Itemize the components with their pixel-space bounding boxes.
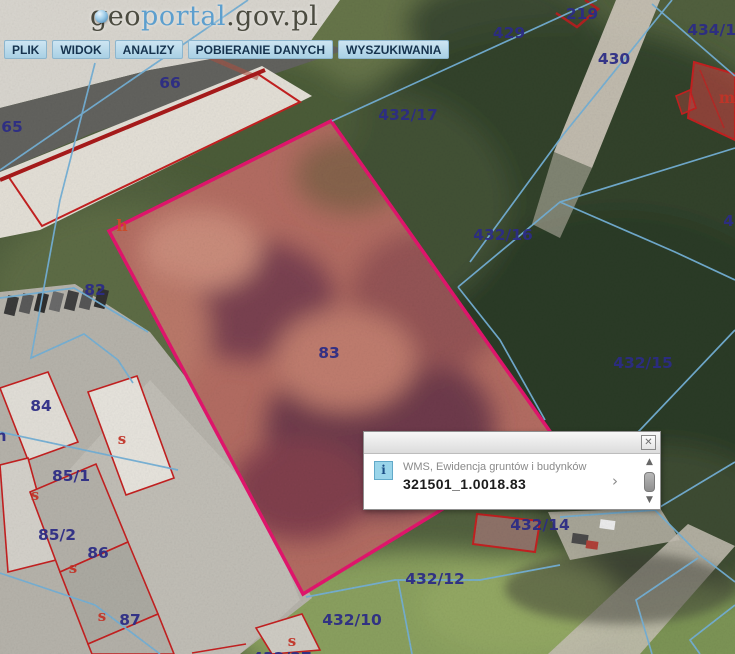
geoportal-logo[interactable]: geoportal.gov.pl xyxy=(90,1,318,32)
popup-titlebar[interactable]: ✕ xyxy=(364,432,660,454)
parcel-label: 432/16 xyxy=(473,226,533,244)
menu-item-widok[interactable]: WIDOK xyxy=(52,40,109,59)
geoportal-map-viewer: 219 429 430 434/16 66 65 h 432/17 432/16… xyxy=(0,0,735,654)
building-label: m xyxy=(719,88,735,107)
scroll-down-icon[interactable]: ▼ xyxy=(646,496,653,505)
logo-part-govpl: .gov.pl xyxy=(226,1,318,32)
parcel-label: 86 xyxy=(87,544,109,562)
parcel-label: 66 xyxy=(159,74,181,92)
parcel-label: 43 xyxy=(723,212,735,230)
feature-info-popup: ✕ i WMS, Ewidencja gruntów i budynków 32… xyxy=(363,431,661,510)
parcel-label: 65 xyxy=(1,118,23,136)
wms-source-label: WMS, Ewidencja gruntów i budynków xyxy=(403,461,598,474)
scroll-up-icon[interactable]: ▲ xyxy=(646,458,653,467)
parcel-label: 85/2 xyxy=(38,526,76,544)
parcel-label: 83 xyxy=(318,344,340,362)
building-label: s xyxy=(69,559,77,577)
menu-item-pobieranie-danych[interactable]: POBIERANIE DANYCH xyxy=(188,40,333,59)
building-label: h xyxy=(116,216,127,235)
parcel-label: 85/1 xyxy=(52,467,90,485)
parcel-label: 84 xyxy=(30,397,52,415)
popup-scrollbar[interactable]: ▲ ▼ xyxy=(642,458,657,505)
parcel-label: 434/16 xyxy=(687,21,735,39)
building-label: s xyxy=(288,632,296,650)
building-label: s xyxy=(31,486,39,504)
parcel-label: 82 xyxy=(84,281,106,299)
logo-globe-icon xyxy=(95,10,108,23)
map-canvas[interactable]: 219 429 430 434/16 66 65 h 432/17 432/16… xyxy=(0,0,735,654)
parcel-code-value: 321501_1.0018.83 xyxy=(403,476,598,492)
menu-item-plik[interactable]: PLIK xyxy=(4,40,47,59)
building-label: n xyxy=(0,427,7,445)
parcel-label: 432/10 xyxy=(322,611,382,629)
menu-item-wyszukiwania[interactable]: WYSZUKIWANIA xyxy=(338,40,449,59)
parcel-label: 432/27 xyxy=(252,649,312,654)
logo-part-portal: portal xyxy=(141,1,226,32)
building-label: s xyxy=(98,607,106,625)
main-menu: PLIK WIDOK ANALIZY POBIERANIE DANYCH WYS… xyxy=(4,40,449,59)
parcel-label: 430 xyxy=(598,50,631,68)
building-label: s xyxy=(118,430,126,448)
parcel-label: 432/17 xyxy=(378,106,438,124)
menu-item-analizy[interactable]: ANALIZY xyxy=(115,40,183,59)
scrollbar-thumb[interactable] xyxy=(644,472,655,492)
parcel-label: 432/14 xyxy=(510,516,570,534)
parcel-label: 432/12 xyxy=(405,570,465,588)
parcel-label: 219 xyxy=(566,5,598,23)
popup-body: i WMS, Ewidencja gruntów i budynków 3215… xyxy=(364,454,660,509)
info-icon: i xyxy=(374,461,393,480)
chevron-right-icon[interactable]: › xyxy=(612,472,618,490)
parcel-label: 87 xyxy=(119,611,141,629)
parcel-label: 432/15 xyxy=(613,354,673,372)
parcel-label: 429 xyxy=(493,24,525,42)
close-icon[interactable]: ✕ xyxy=(641,435,656,450)
